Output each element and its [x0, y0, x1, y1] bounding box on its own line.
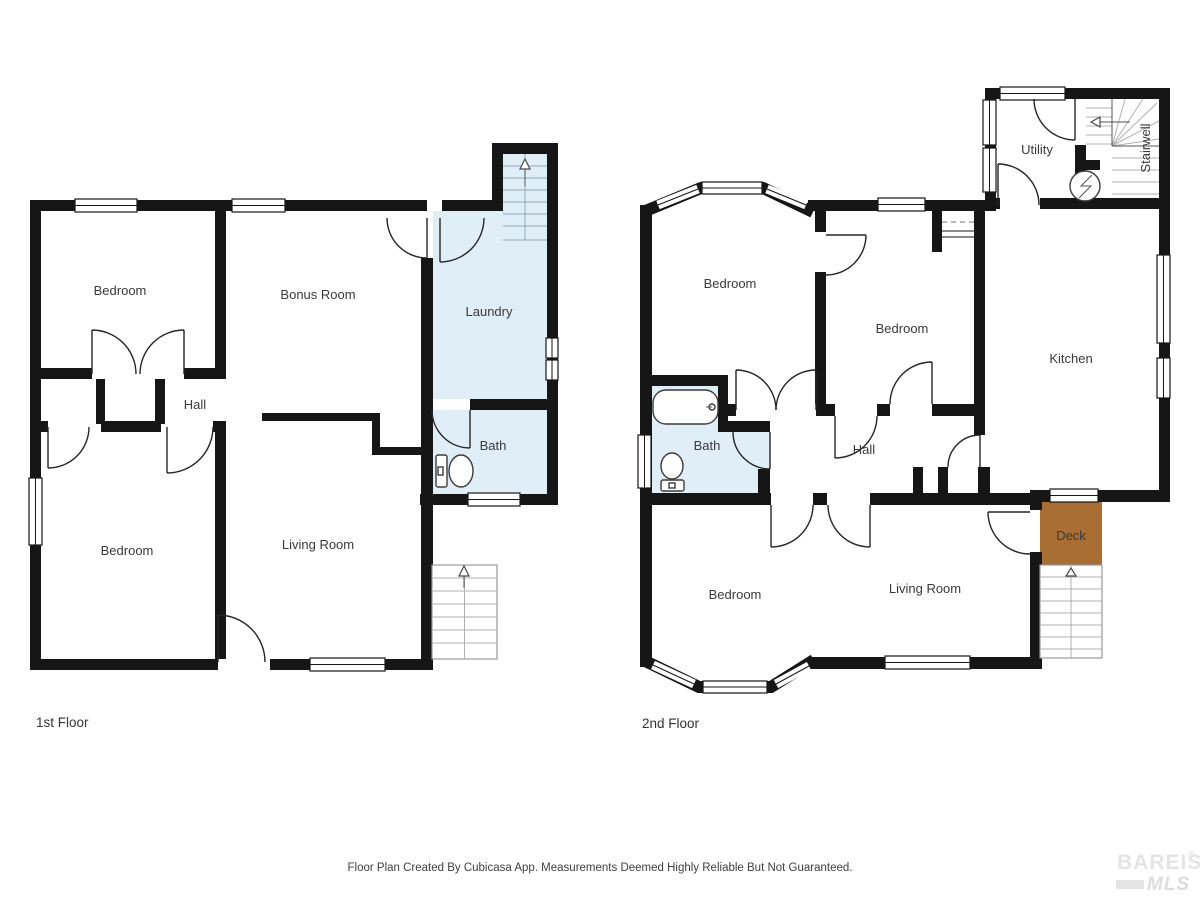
room-label-deck: Deck: [1056, 528, 1086, 543]
room-label-bath: Bath: [694, 438, 721, 453]
watermark-bar: [1116, 880, 1144, 889]
bareis-mls-watermark: BAREIS ® MLS: [1116, 849, 1200, 895]
bathtub-icon: [653, 390, 718, 424]
room-label-hall: Hall: [184, 397, 207, 412]
watermark-registered-icon: ®: [1188, 849, 1195, 859]
second-floor-title: 2nd Floor: [642, 716, 700, 731]
electrical-panel-icon: [1070, 171, 1100, 201]
room-label-bedroom-bottom: Bedroom: [709, 587, 762, 602]
first-floor-plan: Bedroom Bonus Room Laundry Hall Bedroom …: [29, 143, 558, 730]
disclaimer-text: Floor Plan Created By Cubicasa App. Meas…: [348, 862, 853, 874]
room-label-bedroom-bottom: Bedroom: [101, 543, 154, 558]
floor-plan-page: Bedroom Bonus Room Laundry Hall Bedroom …: [0, 0, 1200, 900]
room-label-living-room: Living Room: [889, 581, 961, 596]
second-floor-closet-detail: [942, 222, 974, 237]
room-label-living-room: Living Room: [282, 537, 354, 552]
room-label-hall: Hall: [853, 442, 876, 457]
room-label-bath: Bath: [480, 438, 507, 453]
room-label-utility: Utility: [1021, 142, 1053, 157]
floor-plan-canvas: Bedroom Bonus Room Laundry Hall Bedroom …: [0, 0, 1200, 900]
room-label-bedroom-top: Bedroom: [704, 276, 757, 291]
second-floor-plan: Bedroom Bedroom Utility Stairwell Kitche…: [638, 87, 1170, 731]
room-label-bonus-room: Bonus Room: [280, 287, 355, 302]
room-label-bedroom-mid: Bedroom: [876, 321, 929, 336]
room-label-kitchen: Kitchen: [1049, 351, 1092, 366]
first-floor-title: 1st Floor: [36, 715, 89, 730]
toilet-icon: [661, 453, 684, 491]
toilet-icon: [436, 455, 473, 487]
room-label-stairwell: Stairwell: [1138, 123, 1153, 172]
watermark-suffix-text: MLS: [1147, 874, 1190, 895]
first-floor-bath-fixtures: [436, 455, 473, 487]
second-floor-deck-stairs: [1040, 565, 1102, 658]
room-label-laundry: Laundry: [466, 304, 513, 319]
first-floor-exterior-stairs: [432, 565, 497, 659]
room-label-bedroom-top: Bedroom: [94, 283, 147, 298]
